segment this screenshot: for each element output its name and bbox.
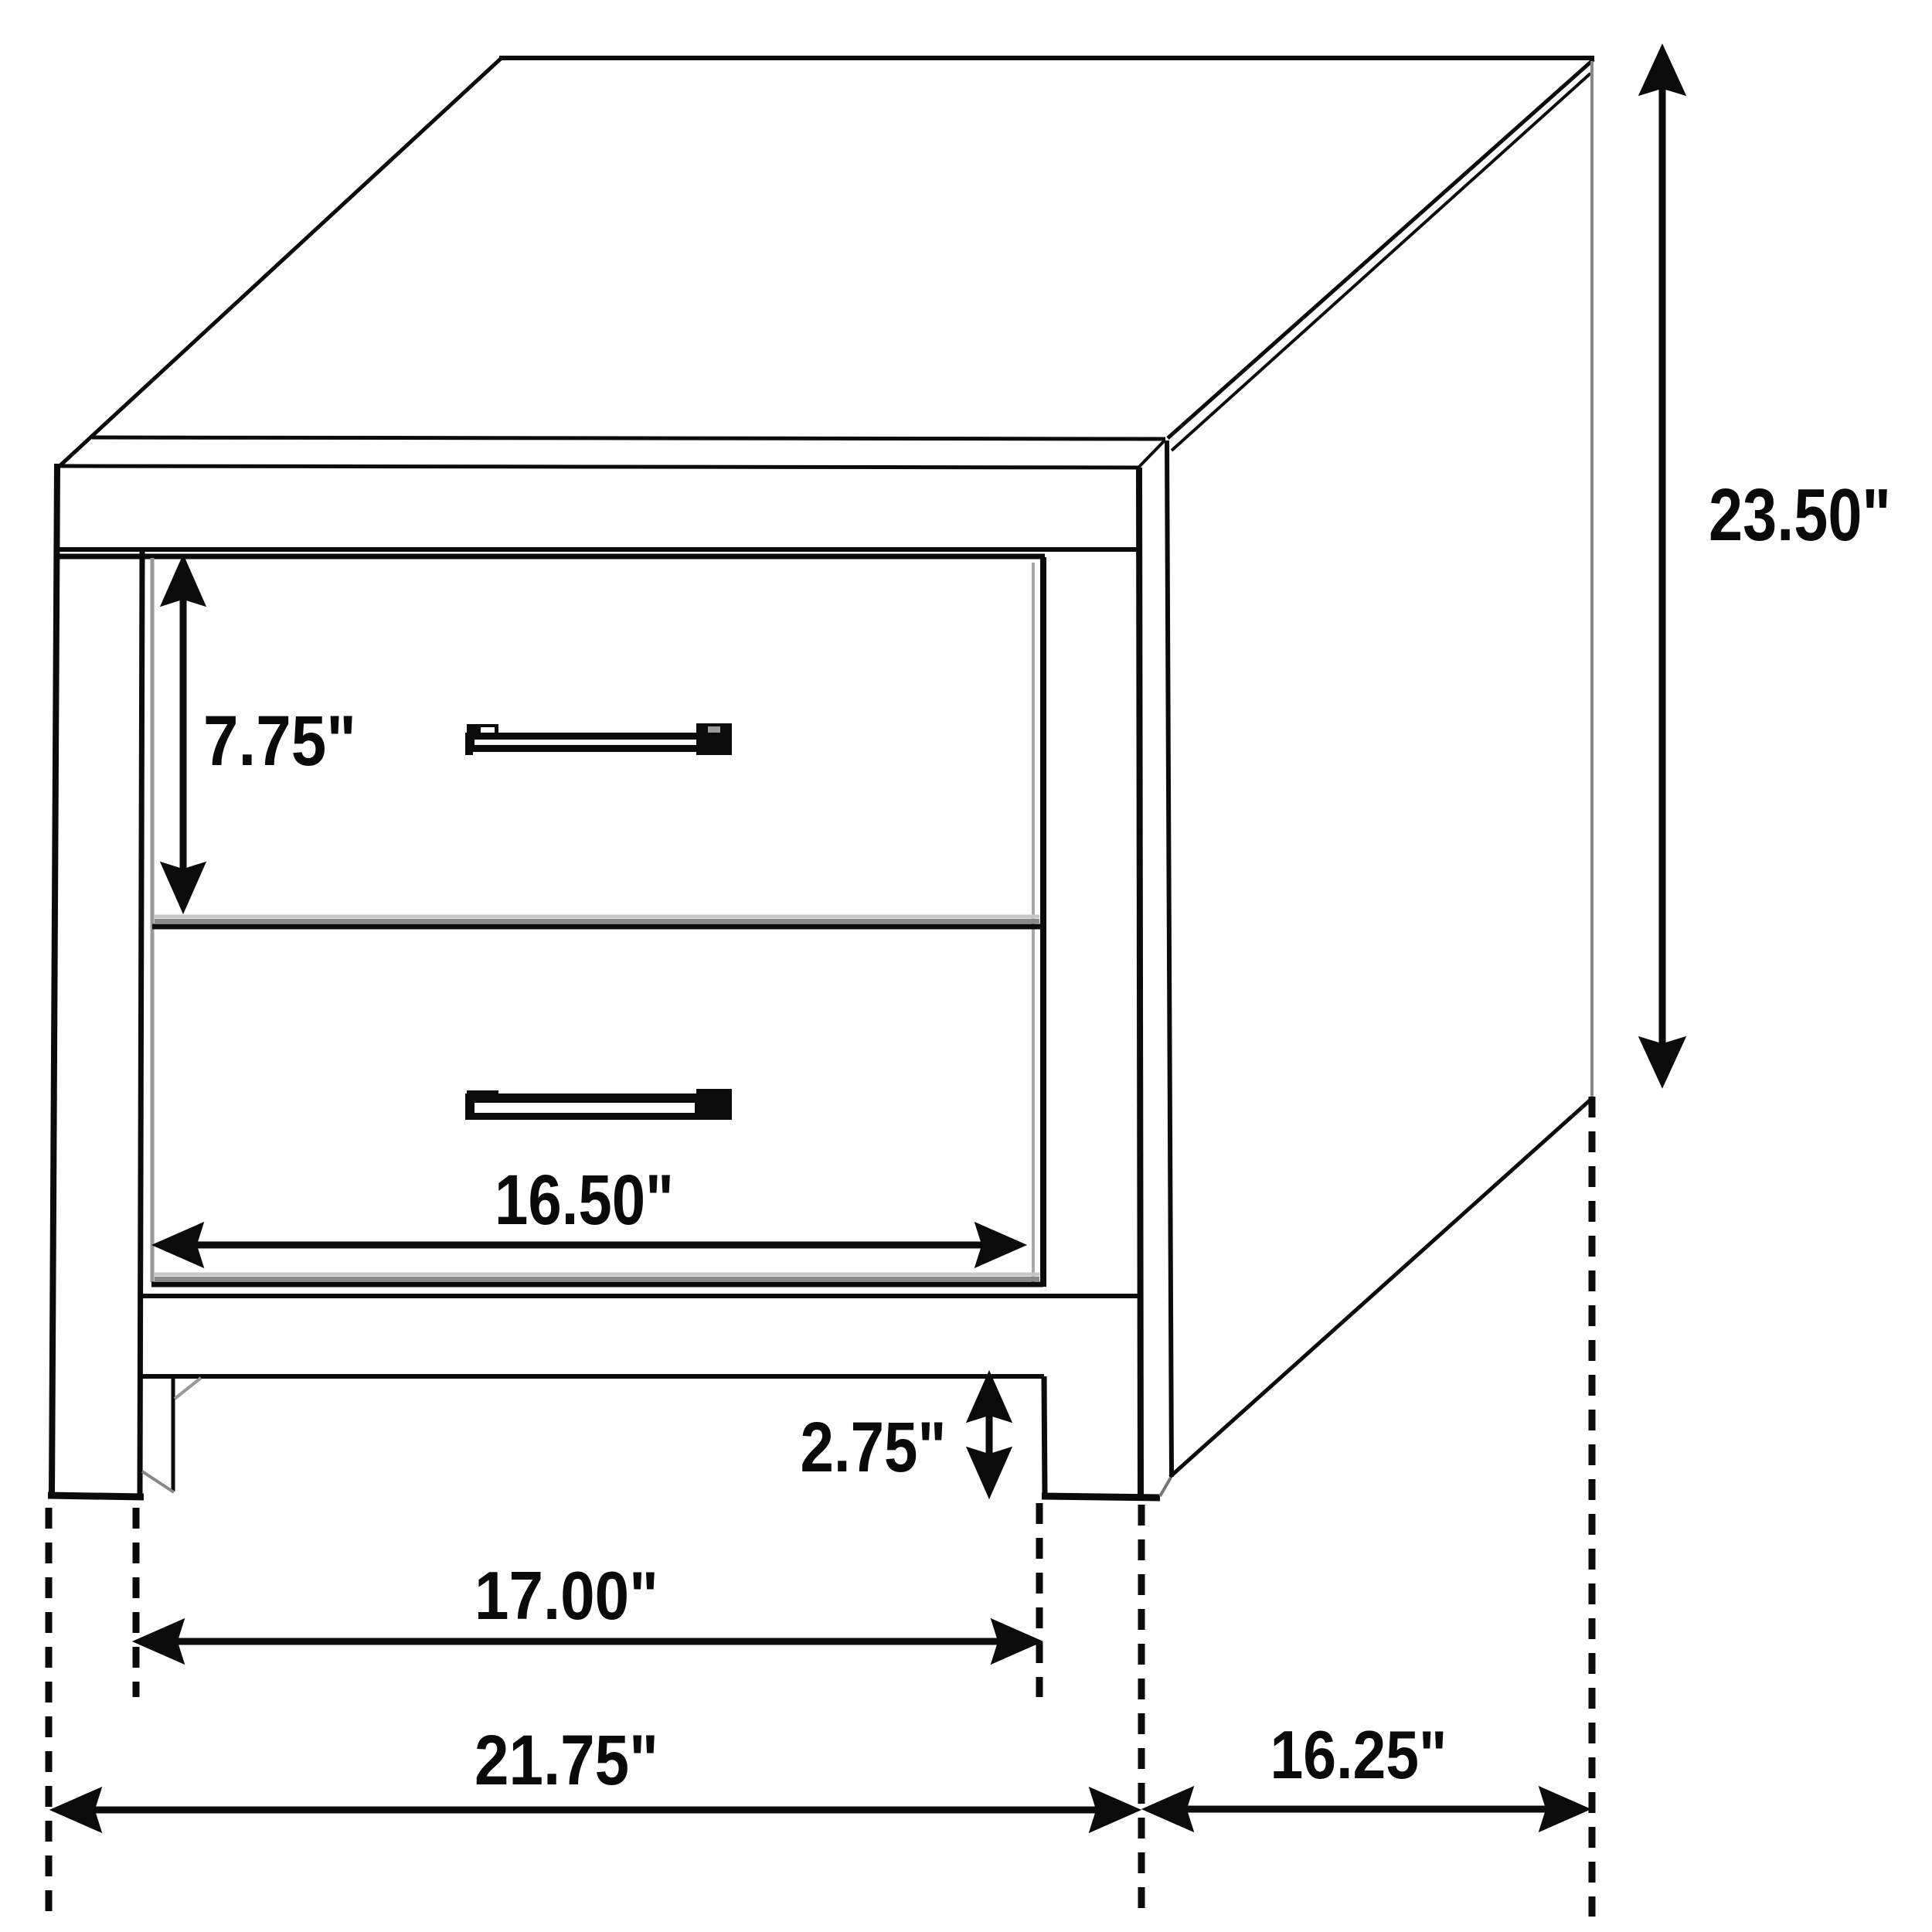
svg-text:7.75": 7.75" bbox=[203, 702, 356, 781]
svg-text:16.50": 16.50" bbox=[495, 1161, 674, 1240]
svg-text:17.00": 17.00" bbox=[474, 1557, 658, 1634]
svg-text:23.50": 23.50" bbox=[1709, 474, 1891, 556]
svg-text:2.75": 2.75" bbox=[801, 1408, 947, 1487]
svg-text:16.25": 16.25" bbox=[1270, 1716, 1447, 1793]
svg-text:21.75": 21.75" bbox=[474, 1721, 658, 1800]
